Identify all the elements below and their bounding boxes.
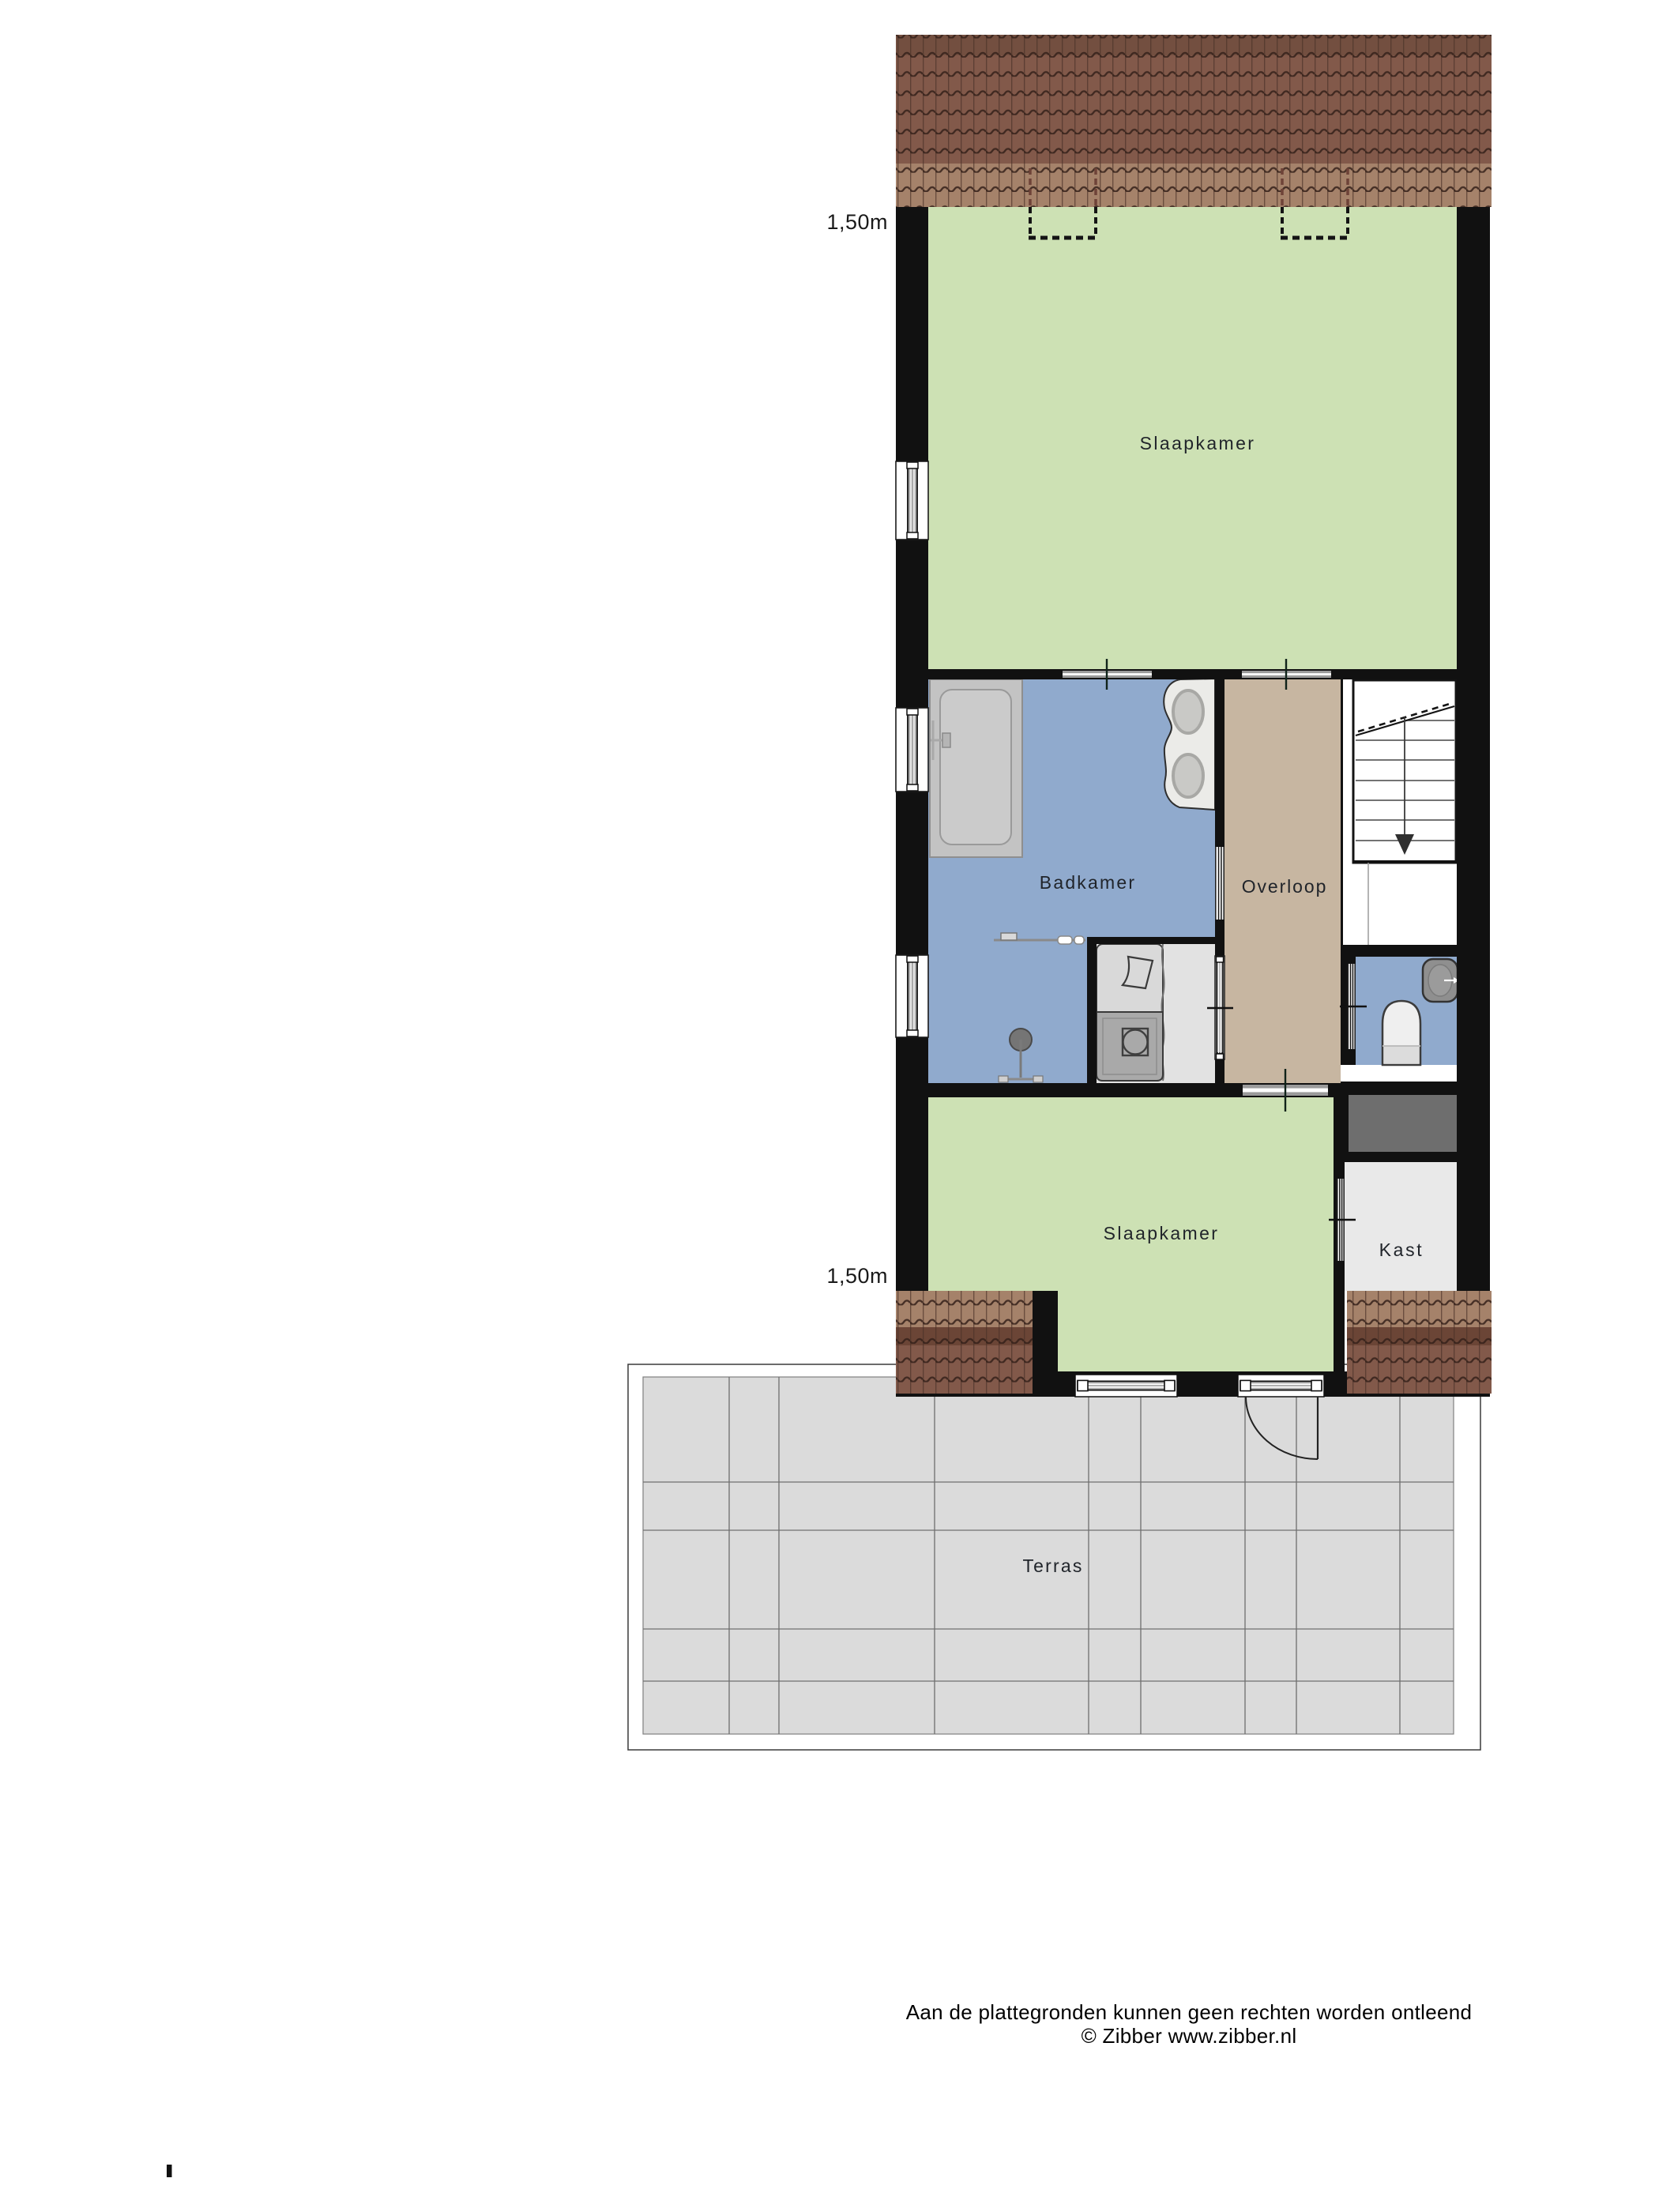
svg-text:Aan de plattegronden kunnen ge: Aan de plattegronden kunnen geen rechten… xyxy=(906,2000,1472,2024)
svg-text:Slaapkamer: Slaapkamer xyxy=(1140,433,1256,453)
svg-text:Badkamer: Badkamer xyxy=(1040,872,1136,893)
svg-text:1,50m: 1,50m xyxy=(826,1264,888,1288)
svg-text:1,50m: 1,50m xyxy=(826,210,888,234)
svg-text:© Zibber www.zibber.nl: © Zibber www.zibber.nl xyxy=(1082,2024,1297,2048)
svg-text:Overloop: Overloop xyxy=(1242,876,1328,897)
svg-text:Slaapkamer: Slaapkamer xyxy=(1104,1223,1220,1243)
svg-text:Kast: Kast xyxy=(1379,1240,1424,1260)
svg-text:Terras: Terras xyxy=(1022,1556,1083,1576)
